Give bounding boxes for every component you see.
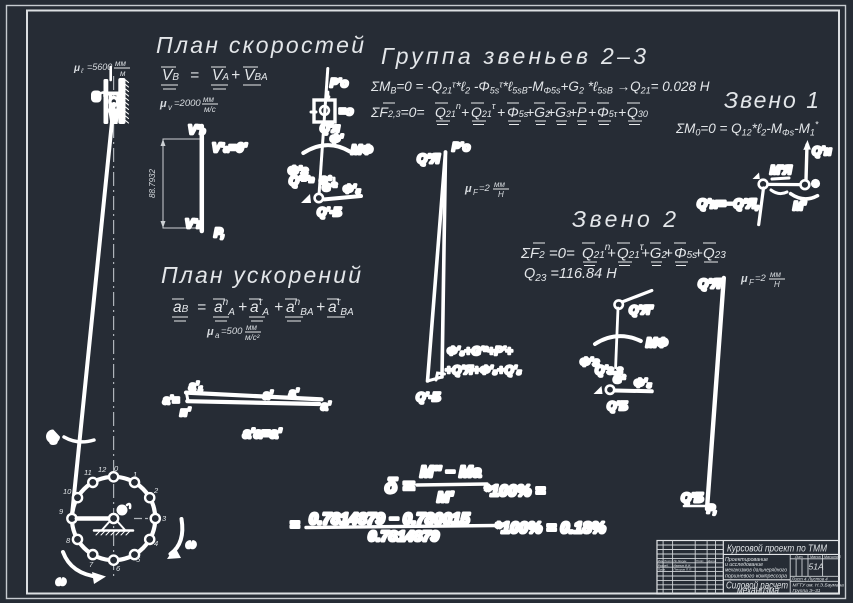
svg-text:Группа звеньев 2–3: Группа звеньев 2–3	[381, 43, 646, 69]
svg-text:ΣMB=0 = -Q21τ*ℓ2 -Φ5sτ*ℓ5sB-MΦ: ΣMB=0 = -Q21τ*ℓ2 -Φ5sτ*ℓ5sB-MΦ5s+G2 *ℓ5s…	[370, 79, 710, 96]
svg-text:10: 10	[63, 487, 72, 496]
svg-text:механизма: механизма	[737, 586, 779, 597]
svg-text:P,: P,	[214, 225, 225, 240]
svg-text:ω: ω	[186, 537, 196, 551]
svg-text:+QʹЯ+Φʹ₅+Qʹ₅: +QʹЯ+Φʹ₅+Qʹ₅	[445, 363, 522, 377]
svg-text:μ: μ	[740, 273, 748, 285]
svg-text:aʹ: aʹ	[321, 399, 332, 413]
svg-text:a: a	[215, 331, 220, 340]
svg-text:=2000: =2000	[174, 98, 201, 109]
svg-text:мм: мм	[115, 59, 126, 68]
svg-text:Qʹ²ʹⁿ: Qʹ²ʹⁿ	[289, 174, 314, 188]
svg-text:aʹ₁: aʹ₁	[189, 379, 203, 393]
svg-text:aʹа=aʹ: aʹа=aʹ	[243, 425, 282, 441]
svg-text:4: 4	[154, 539, 158, 548]
svg-text:*100% =: *100% =	[484, 483, 545, 500]
svg-text:μ: μ	[73, 63, 80, 74]
svg-text:11: 11	[84, 468, 92, 477]
svg-text:Лист: Лист	[663, 559, 672, 563]
svg-text:+: +	[231, 67, 240, 84]
svg-text:aʹ: aʹ	[289, 386, 300, 400]
svg-text:Листов 4: Листов 4	[807, 576, 828, 581]
svg-text:+: +	[588, 104, 596, 120]
svg-text:ω: ω	[56, 574, 66, 588]
svg-text:+: +	[316, 299, 325, 316]
svg-text:Н: Н	[498, 190, 504, 199]
svg-text:мм: мм	[494, 180, 505, 189]
svg-text:=2: =2	[479, 183, 491, 194]
svg-text:12: 12	[98, 465, 107, 474]
svg-text:МГТУ им. Н.Э.Баумана: МГТУ им. Н.Э.Баумана	[793, 583, 845, 589]
svg-text:G²: G²	[613, 374, 626, 386]
svg-text:aʹ≡: aʹ≡	[163, 393, 180, 407]
svg-text:Разраб.: Разраб.	[658, 563, 669, 567]
svg-text:+: +	[274, 299, 283, 316]
svg-text:QʹЯ: QʹЯ	[698, 276, 721, 291]
svg-text:Mʹʹ − Mа: Mʹʹ − Mа	[420, 464, 482, 481]
svg-text:Pʹo: Pʹo	[452, 140, 470, 154]
svg-text:=500: =500	[221, 326, 243, 337]
svg-text:+: +	[694, 245, 703, 262]
svg-text:Масштаб: Масштаб	[824, 555, 842, 559]
svg-text:Дата: Дата	[707, 559, 716, 563]
svg-text:Пров.: Пров.	[658, 568, 666, 572]
svg-text:δ =: δ =	[385, 476, 415, 498]
svg-text:+: +	[618, 104, 626, 120]
svg-text:м/с: м/с	[204, 105, 216, 114]
svg-text:MΦ: MΦ	[351, 142, 373, 157]
svg-text:1: 1	[133, 470, 137, 479]
svg-text:88.7932: 88.7932	[148, 169, 157, 198]
svg-text:Петров П.П.: Петров П.П.	[674, 568, 693, 572]
svg-text:Группа Э–31: Группа Э–31	[793, 588, 821, 594]
svg-text:μ: μ	[206, 326, 214, 338]
svg-text:м/с²: м/с²	[245, 333, 260, 342]
svg-text:μ: μ	[159, 98, 167, 110]
svg-text:QʹБ: QʹБ	[607, 399, 628, 413]
svg-text:+P: +P	[569, 104, 587, 120]
svg-text:=: =	[190, 67, 199, 84]
svg-text:Pʹo: Pʹo	[330, 76, 348, 90]
svg-text:Qʹн=−QʹЯ,: Qʹн=−QʹЯ,	[697, 196, 760, 211]
svg-text:Vʹa=0ʹ: Vʹa=0ʹ	[212, 140, 248, 155]
svg-text:+: +	[238, 299, 247, 316]
svg-text:=: =	[290, 517, 299, 534]
svg-text:+: +	[497, 104, 505, 120]
svg-text:2: 2	[153, 486, 159, 495]
svg-text:Φʹ₅+Gʹ²+Pʹ+: Φʹ₅+Gʹ²+Pʹ+	[447, 344, 513, 358]
svg-text:MΦ: MΦ	[646, 335, 668, 350]
svg-text:+: +	[607, 245, 616, 262]
svg-text:Φʹ₅: Φʹ₅	[343, 182, 361, 196]
svg-text:0.7814879: 0.7814879	[368, 528, 440, 545]
svg-text:Qʹн: Qʹн	[812, 144, 832, 158]
svg-text:P,: P,	[707, 502, 717, 516]
svg-text:Курсовой проект по ТММ: Курсовой проект по ТММ	[727, 543, 827, 555]
svg-text:S: S	[50, 435, 58, 447]
svg-text:Mʹ: Mʹ	[793, 199, 807, 213]
svg-text:Иванов И.И.: Иванов И.И.	[674, 563, 692, 567]
svg-text:MʹЯ: MʹЯ	[770, 163, 792, 177]
svg-text:ΣF2 =0=: ΣF2 =0=	[520, 245, 575, 262]
svg-text:мм: мм	[203, 95, 214, 104]
svg-text:=2: =2	[755, 273, 767, 284]
svg-text:Подп.: Подп.	[696, 559, 704, 563]
svg-text:μ: μ	[464, 183, 472, 195]
svg-text:Qʹ·Б: Qʹ·Б	[317, 205, 342, 219]
svg-text:+: +	[461, 104, 469, 120]
svg-text:aʹ: aʹ	[263, 388, 274, 402]
svg-text:QʹБ: QʹБ	[681, 490, 703, 505]
svg-text:Лист 4: Лист 4	[791, 576, 808, 581]
svg-text:51А: 51А	[809, 562, 824, 572]
svg-text:+: +	[664, 245, 673, 262]
svg-text:м: м	[120, 69, 126, 78]
svg-text:Φʹ₅: Φʹ₅	[634, 376, 652, 390]
svg-text:пʹ: пʹ	[180, 405, 191, 419]
svg-text:QʹЯ: QʹЯ	[417, 151, 440, 166]
svg-text:Mʹ: Mʹ	[437, 489, 453, 506]
svg-text:поршневого компрессора: поршневого компрессора	[725, 574, 787, 580]
svg-text:Gʹ²: Gʹ²	[322, 182, 337, 194]
svg-text:План скоростей: План скоростей	[156, 32, 364, 58]
svg-text:мм: мм	[770, 270, 781, 279]
svg-text:№ докум.: № докум.	[674, 559, 688, 563]
svg-text:≡o: ≡o	[339, 104, 353, 118]
svg-text:мм: мм	[246, 323, 257, 332]
svg-text:Qʹ·Б: Qʹ·Б	[416, 390, 441, 404]
svg-text:=: =	[197, 299, 206, 316]
svg-text:QʹЯʹ: QʹЯʹ	[629, 303, 654, 317]
svg-text:Масса: Масса	[810, 555, 821, 559]
svg-text:Лит.: Лит.	[794, 555, 803, 559]
svg-text:*100% = 0.18%: *100% = 0.18%	[495, 520, 606, 537]
svg-text:=5600: =5600	[87, 62, 112, 72]
svg-text:Н: Н	[774, 280, 780, 289]
